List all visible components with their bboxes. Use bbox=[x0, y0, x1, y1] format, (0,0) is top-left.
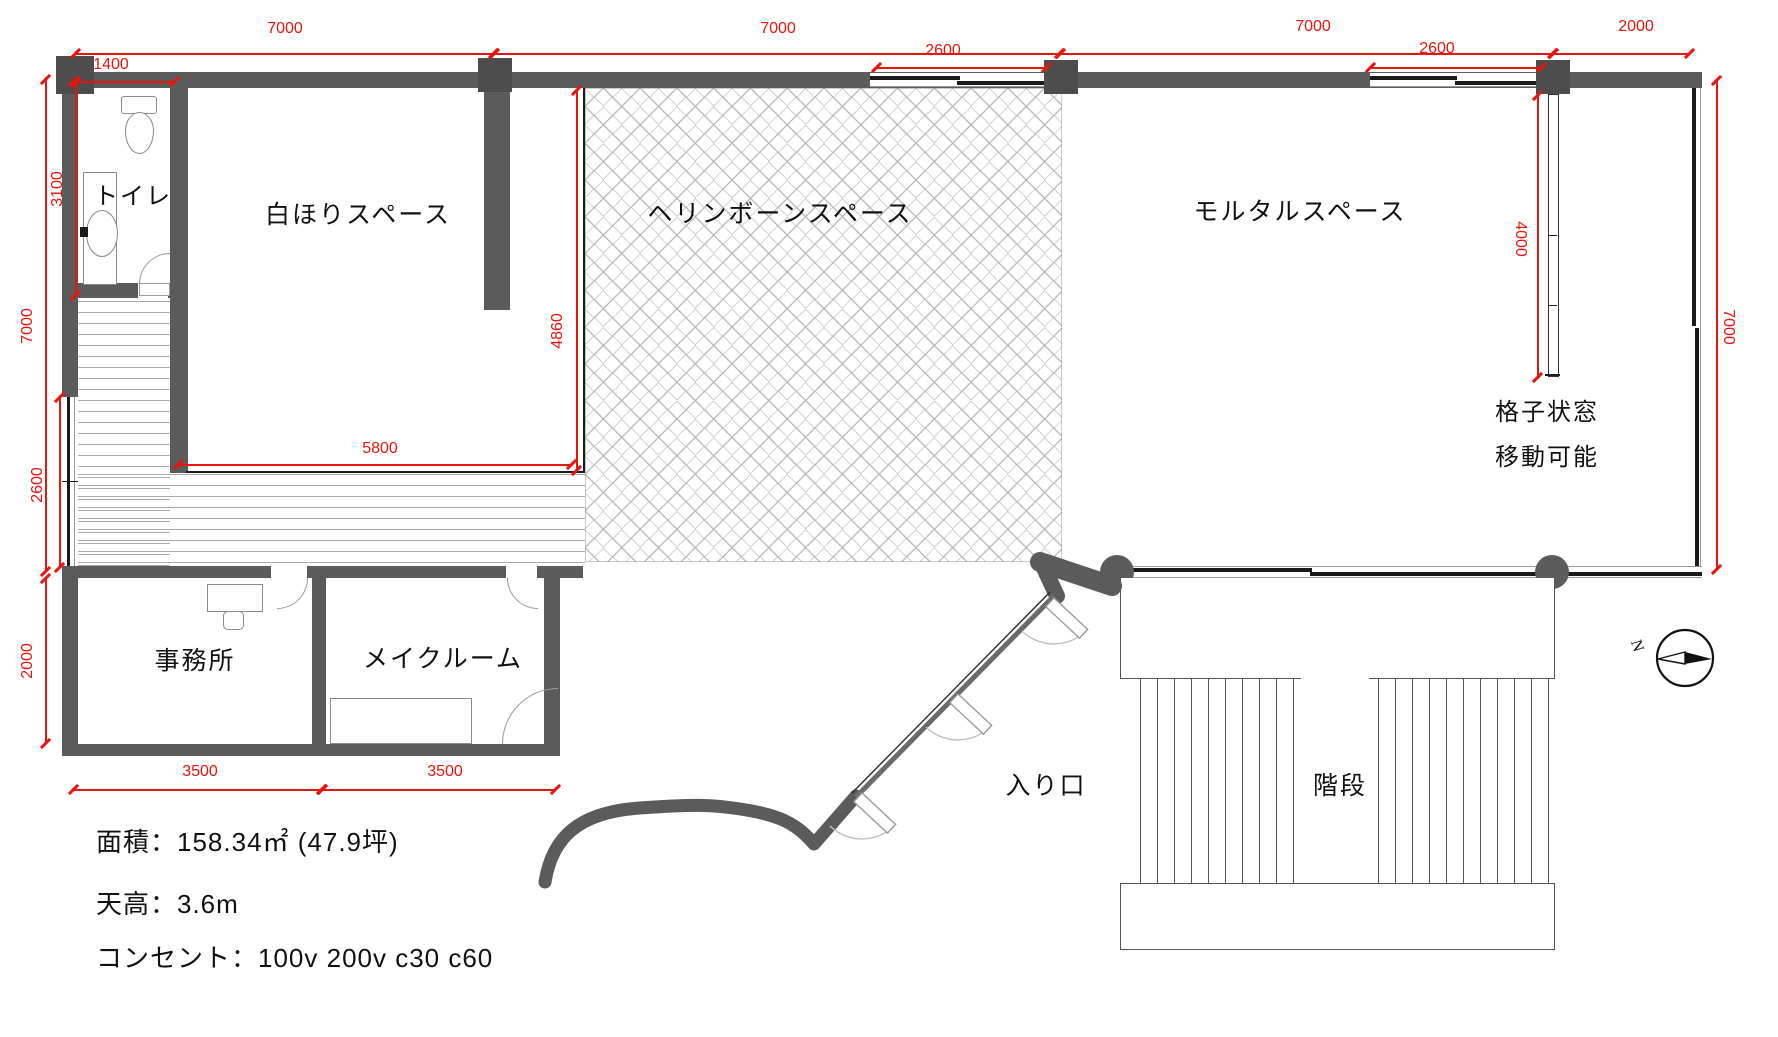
dim-line-top-left bbox=[75, 53, 494, 55]
curved-entrance-wall bbox=[545, 796, 856, 882]
dim-line-whitehori-height bbox=[576, 90, 578, 471]
lattice-note-line2: 移動可能 bbox=[1495, 437, 1599, 472]
entrance-door-leaf-2 bbox=[950, 694, 992, 734]
dim-line-top-right bbox=[1060, 53, 1553, 55]
toilet-bowl-icon bbox=[125, 112, 154, 154]
lattice-note-line1: 格子状窓 bbox=[1495, 392, 1599, 427]
floor-plan-canvas: N トイレ 白ほりスペース ヘリンボーンスペース モルタルスペース 事務所 メイ… bbox=[0, 0, 1778, 1037]
dim-mortar-window: 2600 bbox=[1412, 40, 1462, 58]
column-2 bbox=[478, 58, 512, 92]
dim-left-total: 7000 bbox=[19, 304, 37, 348]
dim-top-end: 2000 bbox=[1606, 18, 1666, 36]
dim-line-top-mid bbox=[494, 53, 1060, 55]
room-label-make-room: メイクルーム bbox=[353, 639, 533, 675]
compass-icon bbox=[1650, 622, 1720, 692]
room-label-stairs: 階段 bbox=[1290, 766, 1390, 802]
compass-north-label: N bbox=[1626, 638, 1647, 656]
room-label-herringbone: ヘリンボーンスペース bbox=[640, 194, 920, 230]
office-bottom-wall bbox=[62, 744, 560, 756]
dim-top-left: 7000 bbox=[255, 20, 315, 38]
dim-line-mortar-window bbox=[1370, 67, 1542, 69]
entrance-door-leaf-1 bbox=[1046, 598, 1088, 638]
room-label-mortar: モルタルスペース bbox=[1190, 192, 1410, 228]
make-room-table bbox=[330, 698, 472, 744]
stairs-upper-landing bbox=[1120, 578, 1555, 679]
dim-left-toilet: 3100 bbox=[49, 167, 67, 211]
dim-line-left-toilet bbox=[75, 82, 77, 296]
dim-line-toilet-width bbox=[73, 81, 175, 83]
room-label-office: 事務所 bbox=[135, 641, 255, 677]
entrance-assembly bbox=[500, 550, 1130, 920]
dim-office-width: 3500 bbox=[172, 763, 228, 781]
dim-makeroom-width: 3500 bbox=[417, 763, 473, 781]
room-label-entrance: 入り口 bbox=[986, 766, 1106, 802]
herringbone-floor bbox=[585, 88, 1062, 562]
dim-line-lattice bbox=[1537, 95, 1539, 378]
office-chair bbox=[223, 611, 244, 630]
room-label-white-hori: 白ほりスペース bbox=[248, 195, 468, 231]
info-area: 面積：158.34㎡ (47.9坪) bbox=[96, 822, 399, 859]
dim-line-right-height bbox=[1716, 80, 1718, 570]
dim-left-office: 2000 bbox=[19, 639, 37, 683]
entrance-door-leaf-3 bbox=[854, 793, 896, 833]
dim-whitehori-width: 5800 bbox=[352, 440, 408, 458]
dim-line-left-office bbox=[45, 578, 47, 744]
info-ceiling: 天高：3.6m bbox=[96, 884, 239, 921]
dim-right-height: 7000 bbox=[1719, 305, 1737, 349]
dim-line-top-end bbox=[1553, 53, 1690, 55]
dim-top-right: 7000 bbox=[1283, 18, 1343, 36]
stairs-lower-landing bbox=[1120, 883, 1555, 950]
herringbone-pattern-icon bbox=[585, 88, 1062, 562]
left-wall-lower bbox=[62, 568, 78, 756]
sink-faucet-icon bbox=[80, 227, 88, 237]
dim-toilet-width: 1400 bbox=[86, 56, 136, 74]
dim-line-whitehori-width bbox=[178, 464, 572, 466]
toilet-door-arc bbox=[139, 253, 170, 284]
pillar-wall-whitehori bbox=[484, 88, 510, 310]
office-door-arc bbox=[277, 578, 308, 609]
dim-whitehori-height: 4860 bbox=[549, 309, 567, 353]
dim-line-makeroom-width bbox=[322, 789, 556, 791]
info-outlets: コンセント：100v 200v c30 c60 bbox=[96, 938, 493, 975]
toilet-partition-wall bbox=[170, 82, 188, 473]
dim-left-window: 2600 bbox=[29, 463, 47, 507]
dim-herringbone-window: 2600 bbox=[918, 42, 968, 60]
dim-lattice: 4000 bbox=[1511, 217, 1529, 261]
office-divider-wall bbox=[312, 566, 326, 756]
left-wall-window bbox=[62, 397, 78, 568]
dim-line-left-window bbox=[59, 397, 61, 568]
white-hori-bottom-line bbox=[186, 471, 585, 473]
sink-basin-icon bbox=[86, 210, 118, 257]
office-desk bbox=[207, 584, 263, 612]
dim-line-office-width bbox=[73, 789, 322, 791]
room-label-toilet: トイレ bbox=[88, 176, 178, 211]
dim-line-herringbone-window bbox=[876, 67, 1047, 69]
toilet-door-leaf bbox=[139, 283, 170, 296]
dim-top-mid: 7000 bbox=[748, 20, 808, 38]
